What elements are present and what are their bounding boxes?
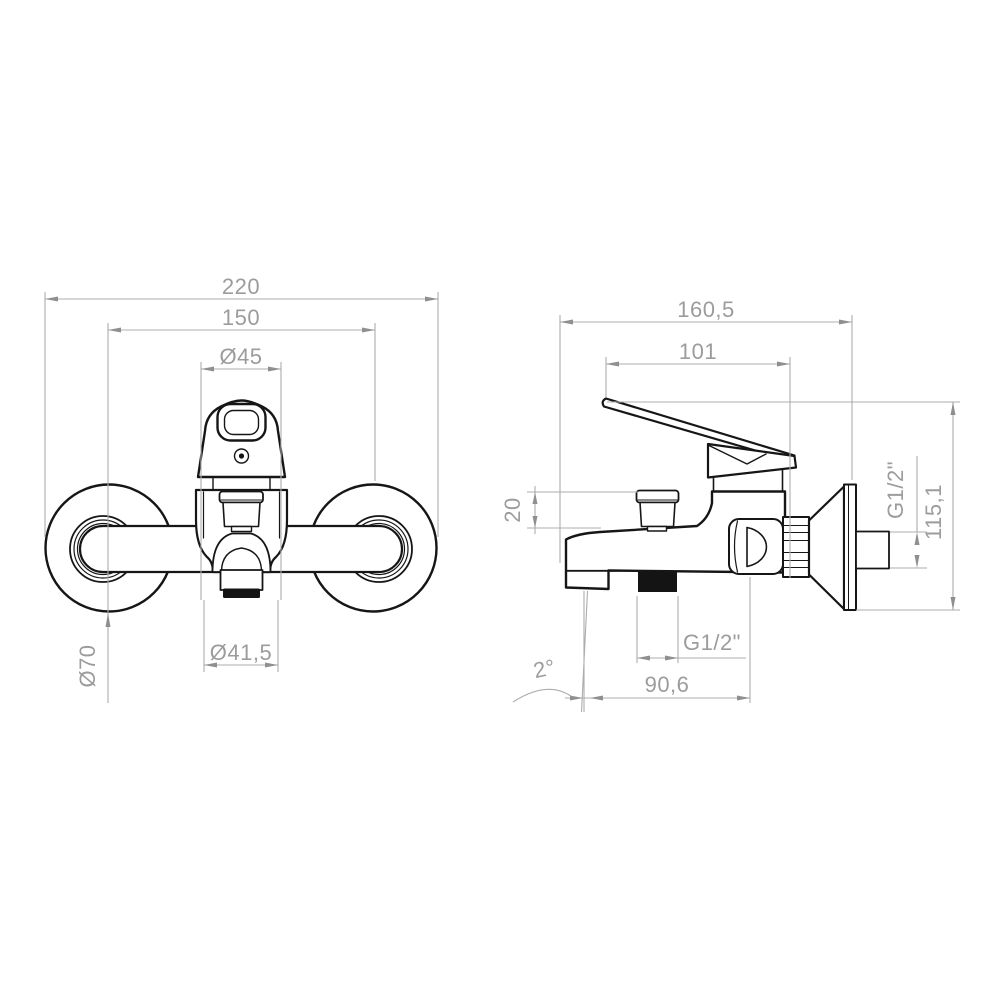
side-view xyxy=(566,399,889,611)
front-view xyxy=(46,401,437,612)
diverter-knob-front xyxy=(220,492,264,532)
dim-label-overall-width: 220 xyxy=(222,274,260,299)
dim-label-shower-outlet-thread: G1/2" xyxy=(683,630,741,655)
wall-flange-plate xyxy=(844,485,856,611)
dim-label-spout-projection: 90,6 xyxy=(645,672,690,697)
dim-shower-outlet-thread: G1/2" xyxy=(637,596,746,663)
dim-label-lever-projection: 101 xyxy=(679,339,717,364)
connector-nut xyxy=(729,519,783,574)
diverter-knob-side xyxy=(637,491,679,532)
dim-label-wall-connection-thread: G1/2" xyxy=(883,461,908,519)
dim-label-spout-angle: 2° xyxy=(531,654,558,683)
dim-label-diverter-height: 20 xyxy=(500,497,525,522)
wall-nut xyxy=(783,517,809,577)
technical-drawing-page: 220 150 Ø45 Ø41,5 Ø70 xyxy=(0,0,1000,1000)
dim-diverter-height: 20 xyxy=(500,486,638,534)
dim-label-overall-depth: 160,5 xyxy=(677,297,735,322)
dim-spout-angle: 2° xyxy=(513,654,571,702)
faucet-dimension-drawing: 220 150 Ø45 Ø41,5 Ø70 xyxy=(0,0,1000,1000)
dim-label-outlet-diameter: Ø41,5 xyxy=(210,640,272,665)
spout-front xyxy=(213,534,271,573)
shower-outlet-front xyxy=(221,570,263,598)
dim-outlet-diameter: Ø41,5 xyxy=(204,600,278,672)
wall-nipple xyxy=(856,532,889,569)
shower-hose-thread xyxy=(638,572,677,593)
dim-escutcheon-diameter: Ø70 xyxy=(75,613,111,688)
dim-label-escutcheon-diameter: Ø70 xyxy=(75,644,100,687)
dim-label-handle-diameter: Ø45 xyxy=(219,344,262,369)
dim-label-mounting-centers: 150 xyxy=(222,305,260,330)
wall-flange-cone xyxy=(809,487,844,610)
